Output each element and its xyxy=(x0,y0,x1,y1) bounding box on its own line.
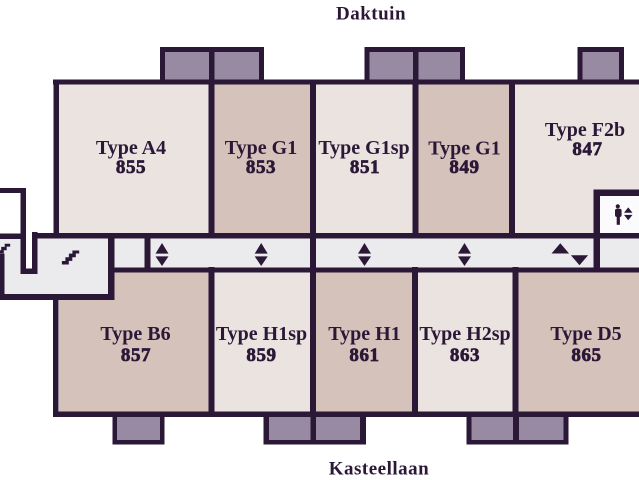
svg-text:865: 865 xyxy=(571,345,601,366)
svg-text:857: 857 xyxy=(121,345,151,366)
svg-text:861: 861 xyxy=(349,345,379,366)
svg-text:853: 853 xyxy=(246,157,276,178)
svg-text:Type B6: Type B6 xyxy=(100,323,170,345)
svg-text:Type G1: Type G1 xyxy=(225,137,297,159)
svg-text:847: 847 xyxy=(572,139,602,160)
svg-text:Type D5: Type D5 xyxy=(550,323,621,345)
svg-text:863: 863 xyxy=(450,345,480,366)
svg-text:849: 849 xyxy=(449,157,479,178)
svg-text:Kasteellaan: Kasteellaan xyxy=(329,459,430,480)
svg-text:851: 851 xyxy=(350,157,380,178)
svg-text:859: 859 xyxy=(246,345,276,366)
svg-text:Type G1sp: Type G1sp xyxy=(318,137,409,159)
svg-text:Daktuin: Daktuin xyxy=(336,4,406,25)
svg-text:Type A4: Type A4 xyxy=(96,137,166,159)
svg-text:855: 855 xyxy=(116,157,146,178)
svg-text:Type H1: Type H1 xyxy=(328,323,400,345)
svg-text:Type H1sp: Type H1sp xyxy=(216,323,307,345)
svg-text:Type F2b: Type F2b xyxy=(545,119,625,141)
svg-text:Type H2sp: Type H2sp xyxy=(419,323,510,345)
